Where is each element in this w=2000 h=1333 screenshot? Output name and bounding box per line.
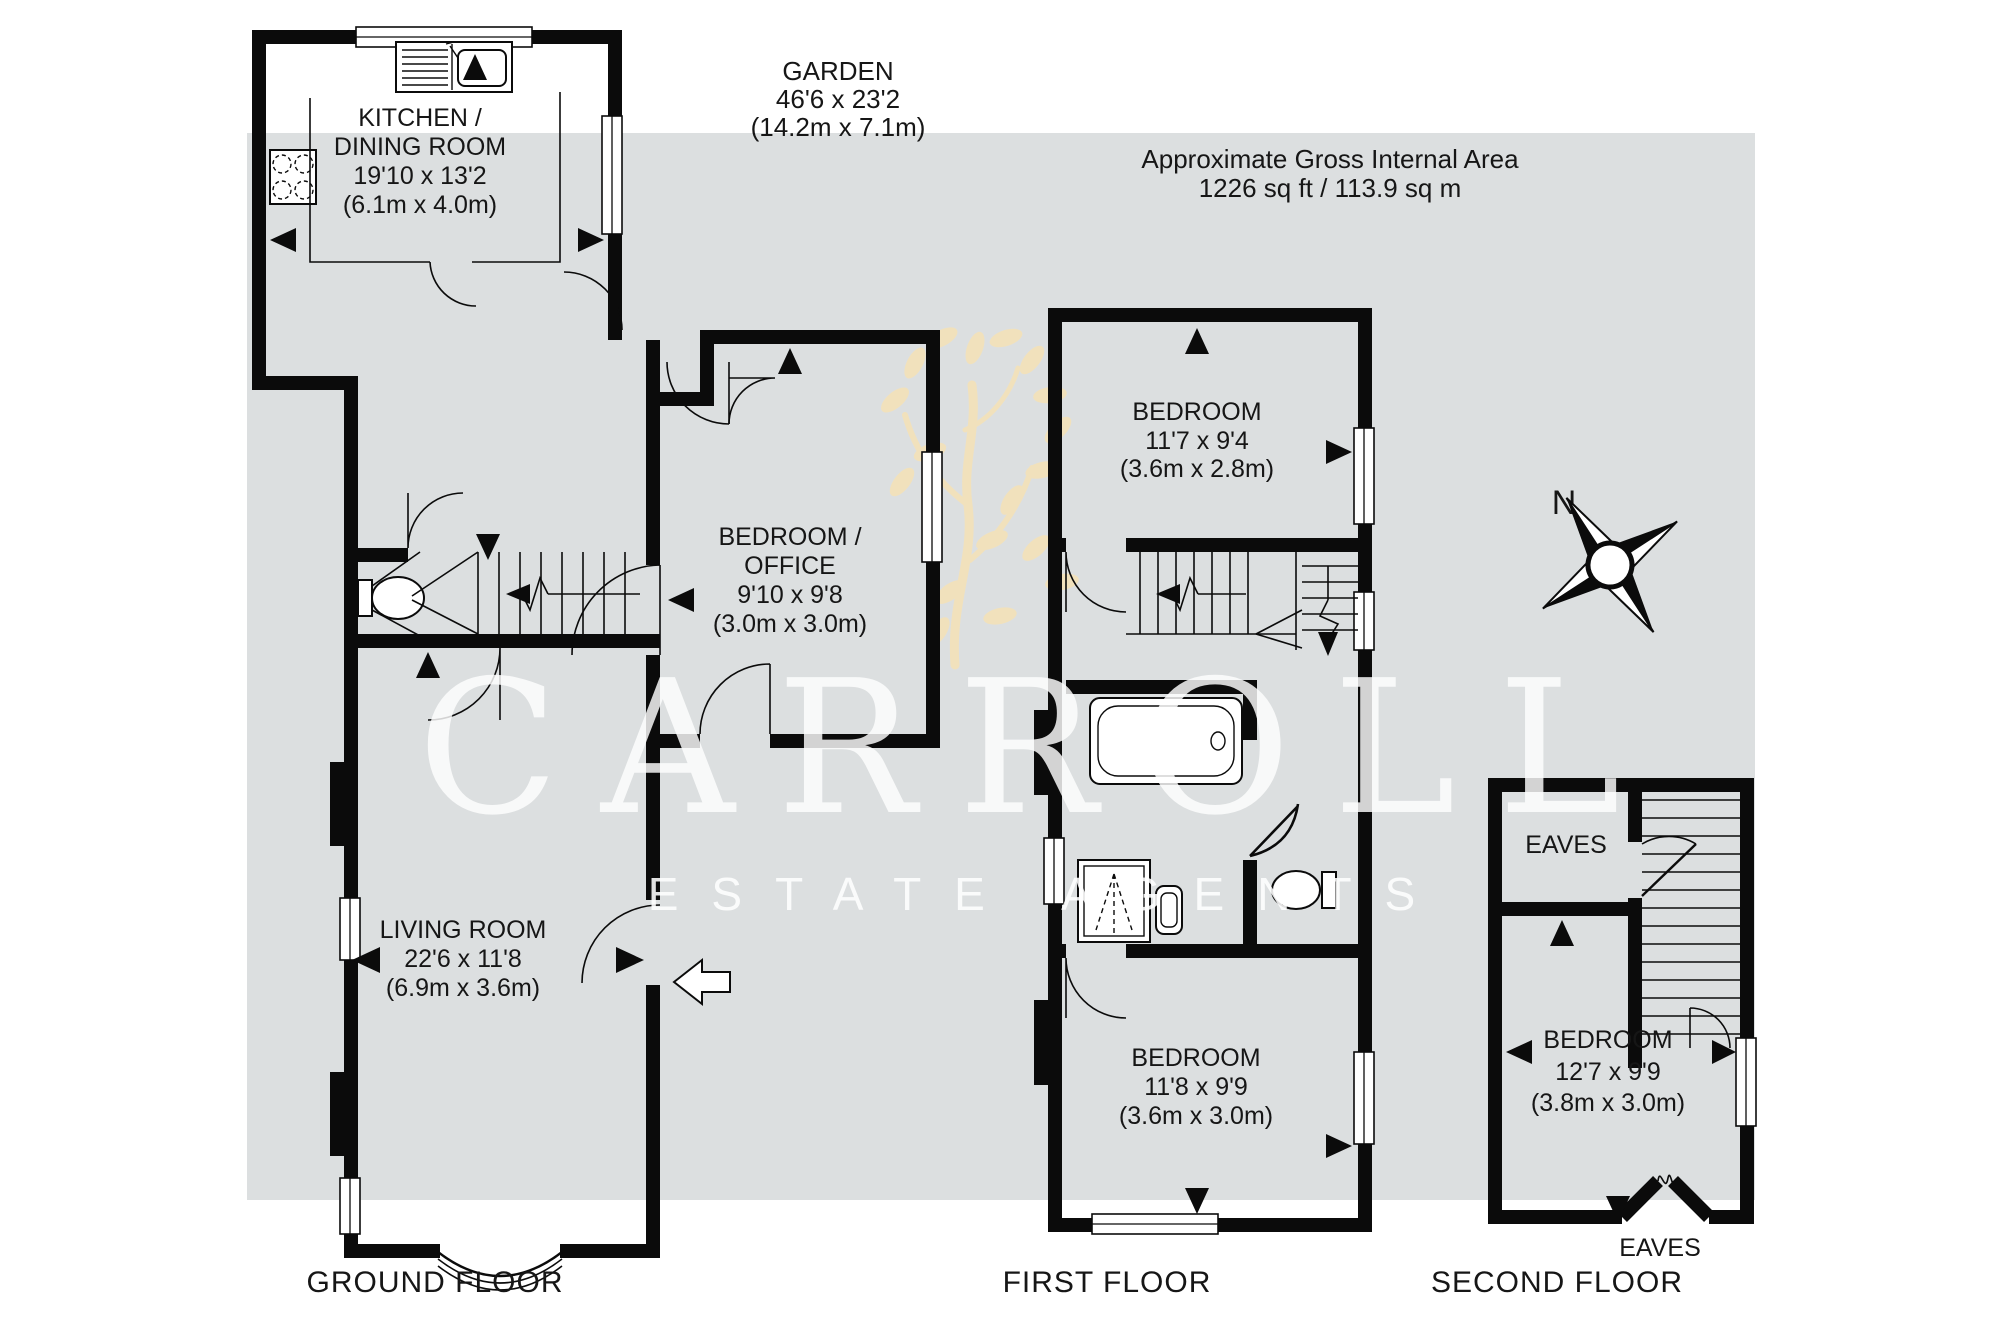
bedroom-top-window <box>1354 428 1374 524</box>
area-note-line1: Approximate Gross Internal Area <box>1141 144 1519 174</box>
area-note-line2: 1226 sq ft / 113.9 sq m <box>1199 173 1462 203</box>
garden-size-imperial: 46'6 x 23'2 <box>776 84 900 114</box>
bedroom-office-size-imperial: 9'10 x 9'8 <box>737 581 842 609</box>
second-floor-title: SECOND FLOOR <box>1431 1266 1683 1299</box>
brand-tagline-watermark: ESTATE AGENTS <box>648 868 1448 920</box>
kitchen-size-metric: (6.1m x 4.0m) <box>343 191 497 219</box>
garden-size-metric: (14.2m x 7.1m) <box>751 112 926 142</box>
kitchen-label: KITCHEN / DINING ROOM 19'10 x 13'2 (6.1m… <box>334 104 506 219</box>
sf-bedroom-size-metric: (3.8m x 3.0m) <box>1531 1089 1685 1117</box>
sf-bedroom-size-imperial: 12'7 x 9'9 <box>1555 1058 1660 1086</box>
first-floor-title: FIRST FLOOR <box>1003 1266 1212 1299</box>
office-side-window <box>922 452 942 562</box>
living-room-name: LIVING ROOM <box>380 916 547 944</box>
bedroom-office-name-line1: BEDROOM / <box>718 523 861 551</box>
brand-name-watermark: CARROLL <box>417 640 1662 856</box>
bedroom-bottom-name: BEDROOM <box>1131 1044 1260 1072</box>
bedroom-bottom-window <box>1092 1214 1218 1234</box>
bedroom-office-name-line2: OFFICE <box>744 552 836 580</box>
bedroom-top-size-imperial: 11'7 x 9'4 <box>1145 427 1249 455</box>
kitchen-sink-icon <box>396 42 512 92</box>
bedroom-top-size-metric: (3.6m x 2.8m) <box>1120 455 1274 483</box>
living-room-size-metric: (6.9m x 3.6m) <box>386 974 540 1002</box>
sf-bedroom-name: BEDROOM <box>1543 1026 1672 1054</box>
garden-label: GARDEN 46'6 x 23'2 (14.2m x 7.1m) <box>751 56 926 142</box>
bedroom-office-size-metric: (3.0m x 3.0m) <box>713 610 867 638</box>
kitchen-name-line1: KITCHEN / <box>358 104 482 132</box>
bedroom-bottom-size-imperial: 11'8 x 9'9 <box>1144 1073 1248 1101</box>
bedroom-bottom-side-window <box>1354 1052 1374 1144</box>
eaves-bottom-label: EAVES <box>1619 1234 1701 1262</box>
floorplan-canvas: KITCHEN / DINING ROOM 19'10 x 13'2 (6.1m… <box>0 0 2000 1333</box>
ground-floor-title: GROUND FLOOR <box>306 1266 563 1299</box>
living-room-window-2 <box>340 1178 360 1234</box>
kitchen-size-imperial: 19'10 x 13'2 <box>353 162 486 190</box>
floorplan-page: KITCHEN / DINING ROOM 19'10 x 13'2 (6.1m… <box>0 0 2000 1333</box>
second-floor-window <box>1736 1038 1756 1126</box>
bedroom-bottom-size-metric: (3.6m x 3.0m) <box>1119 1102 1273 1130</box>
hob-icon <box>270 150 316 204</box>
kitchen-name-line2: DINING ROOM <box>334 133 506 161</box>
living-room-window-1 <box>340 898 360 960</box>
bedroom-top-name: BEDROOM <box>1132 398 1261 426</box>
kitchen-side-window <box>602 116 622 234</box>
living-room-label: LIVING ROOM 22'6 x 11'8 (6.9m x 3.6m) <box>380 916 547 1002</box>
living-room-size-imperial: 22'6 x 11'8 <box>404 945 522 973</box>
garden-name: GARDEN <box>782 56 893 86</box>
